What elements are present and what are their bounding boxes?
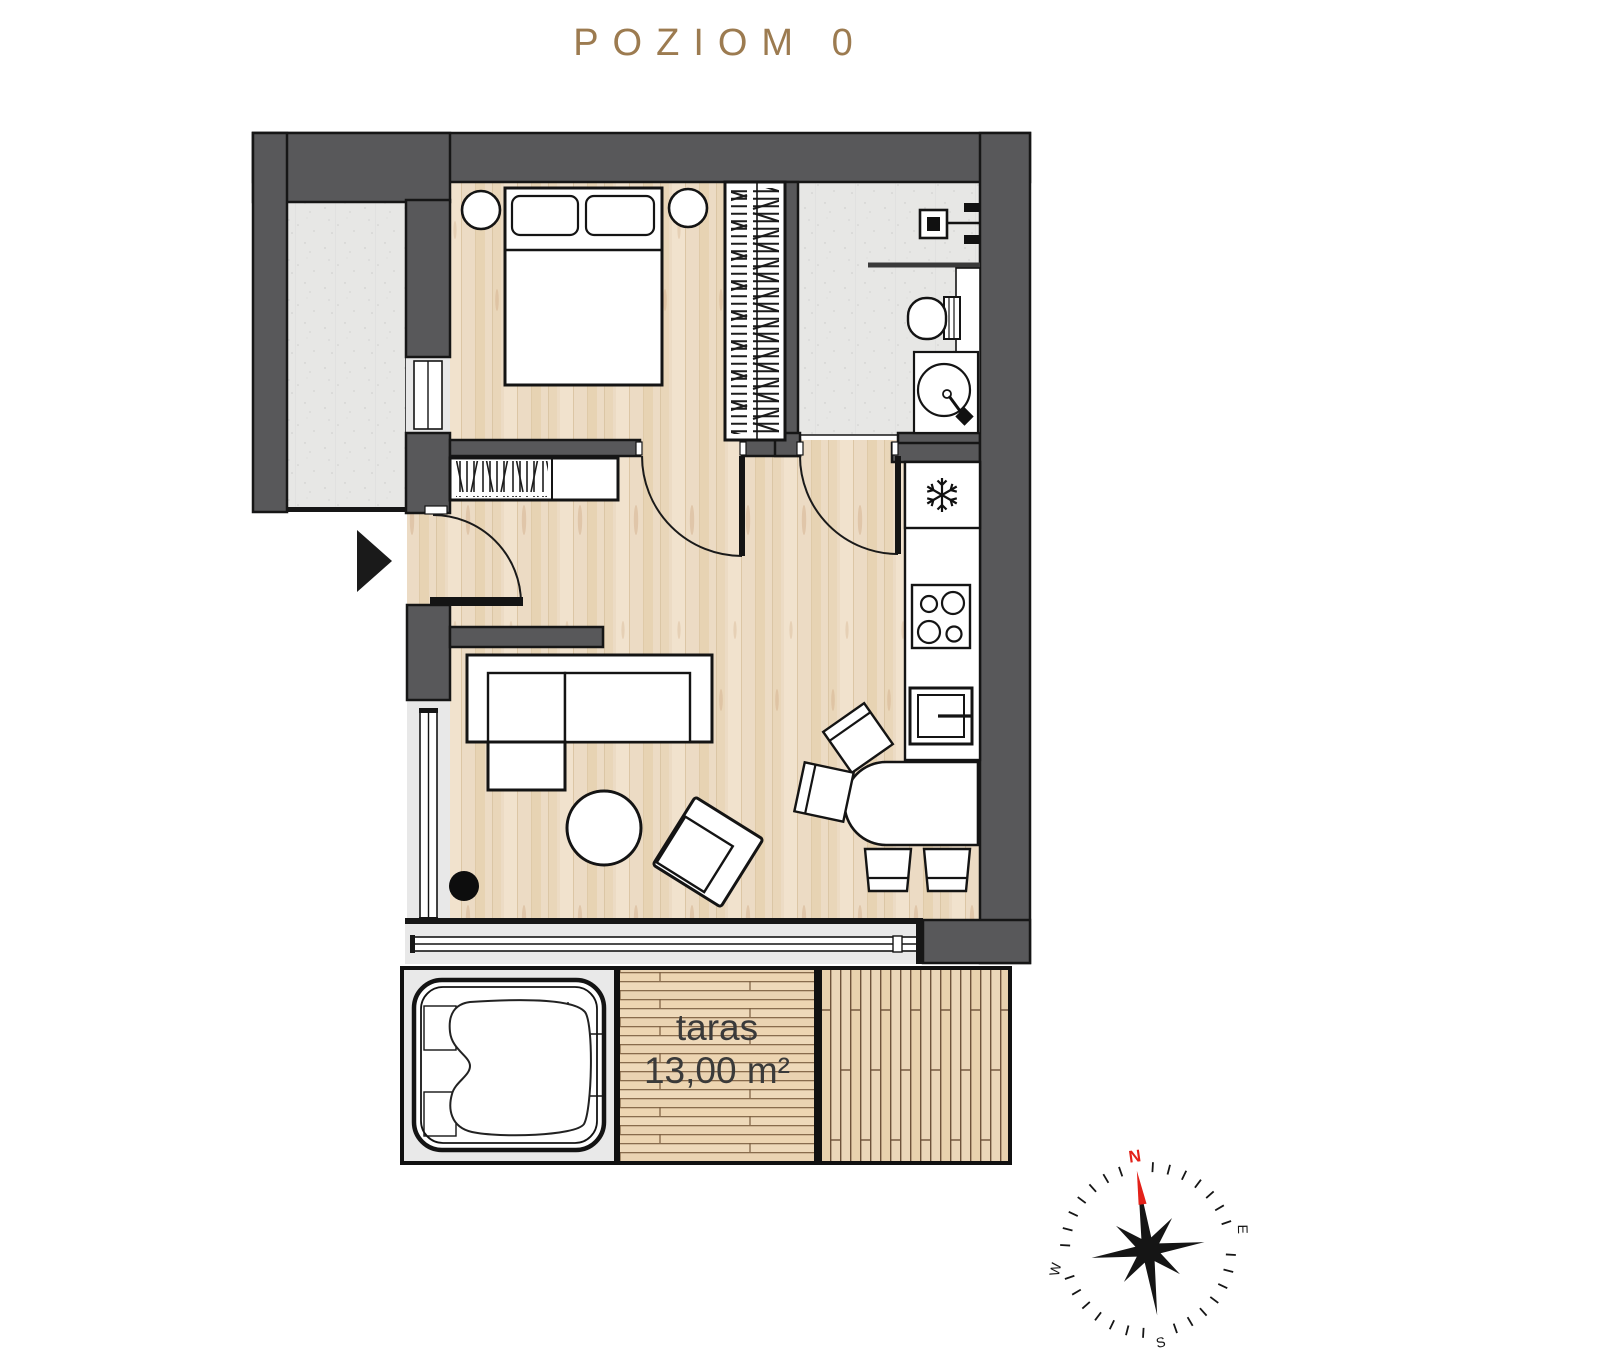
wall-left	[253, 133, 287, 512]
floor-plan-page: POZIOM 0	[0, 0, 1600, 1350]
living-side-window	[407, 700, 450, 925]
hallway-closet	[450, 458, 618, 500]
entrance-arrow-icon	[357, 530, 392, 592]
floor-lamp-dot	[449, 871, 479, 901]
hot-tub-section	[402, 968, 616, 1163]
compass-north-label: N	[1127, 1146, 1142, 1167]
compass-south-label: S	[1154, 1333, 1166, 1350]
north-needle	[1134, 1170, 1147, 1205]
wall-patio-right-lower	[406, 433, 450, 513]
wall-wardrobe-bath-divider	[785, 182, 798, 440]
coffee-table	[567, 791, 641, 865]
compass-rose: N E S W	[1030, 1132, 1266, 1350]
dining-chair-3	[865, 849, 911, 891]
toilet	[908, 297, 960, 339]
hot-tub	[414, 980, 604, 1150]
cooktop	[912, 585, 970, 648]
wall-hall-top	[450, 440, 640, 456]
wardrobe-hangers-icon	[731, 188, 779, 434]
terrace-deck-main: taras 13,00 m²	[618, 968, 816, 1163]
patio-window	[406, 355, 450, 435]
terrace-area: 13,00 m²	[644, 1050, 790, 1091]
closet-hangers-icon	[456, 461, 548, 497]
living-bottom-edge	[405, 918, 923, 924]
pillow-right	[586, 196, 654, 235]
compass-west-label: W	[1046, 1261, 1065, 1278]
wall-entry-block	[407, 605, 450, 700]
bedroom-wardrobe	[725, 182, 785, 440]
nightstand-right	[669, 189, 707, 227]
entry-patio-floor	[287, 202, 406, 510]
terrace-sliding-window	[405, 924, 923, 964]
washbasin	[914, 352, 978, 433]
kitchen	[905, 462, 980, 760]
compass-east-label: E	[1235, 1224, 1251, 1234]
hot-tub-water	[450, 1000, 591, 1135]
fridge	[905, 462, 980, 528]
dining-chair-4	[924, 849, 970, 891]
terrace: taras 13,00 m²	[402, 968, 1010, 1163]
wall-living-partition	[450, 627, 603, 647]
nightstand-left	[462, 191, 500, 229]
pillow-left	[512, 196, 578, 235]
sofa-chaise	[488, 742, 565, 790]
floor-plan-drawing: taras 13,00 m²	[0, 0, 1600, 1350]
terrace-deck-side	[820, 968, 1010, 1163]
wall-bottom-right	[923, 920, 1030, 963]
wall-patio-right-upper	[406, 200, 450, 357]
kitchen-sink	[910, 688, 972, 744]
entry-doorway-floor	[407, 512, 450, 605]
wall-right	[980, 133, 1030, 963]
dining-table	[845, 762, 979, 845]
terrace-label: taras	[676, 1007, 758, 1048]
double-bed	[505, 188, 662, 385]
page-title: POZIOM 0	[0, 22, 1440, 65]
wall-kitchen-top	[892, 443, 980, 462]
dining-chair-2	[794, 762, 853, 821]
compass-star	[1082, 1171, 1214, 1324]
patio-bottom-edge	[287, 507, 406, 512]
